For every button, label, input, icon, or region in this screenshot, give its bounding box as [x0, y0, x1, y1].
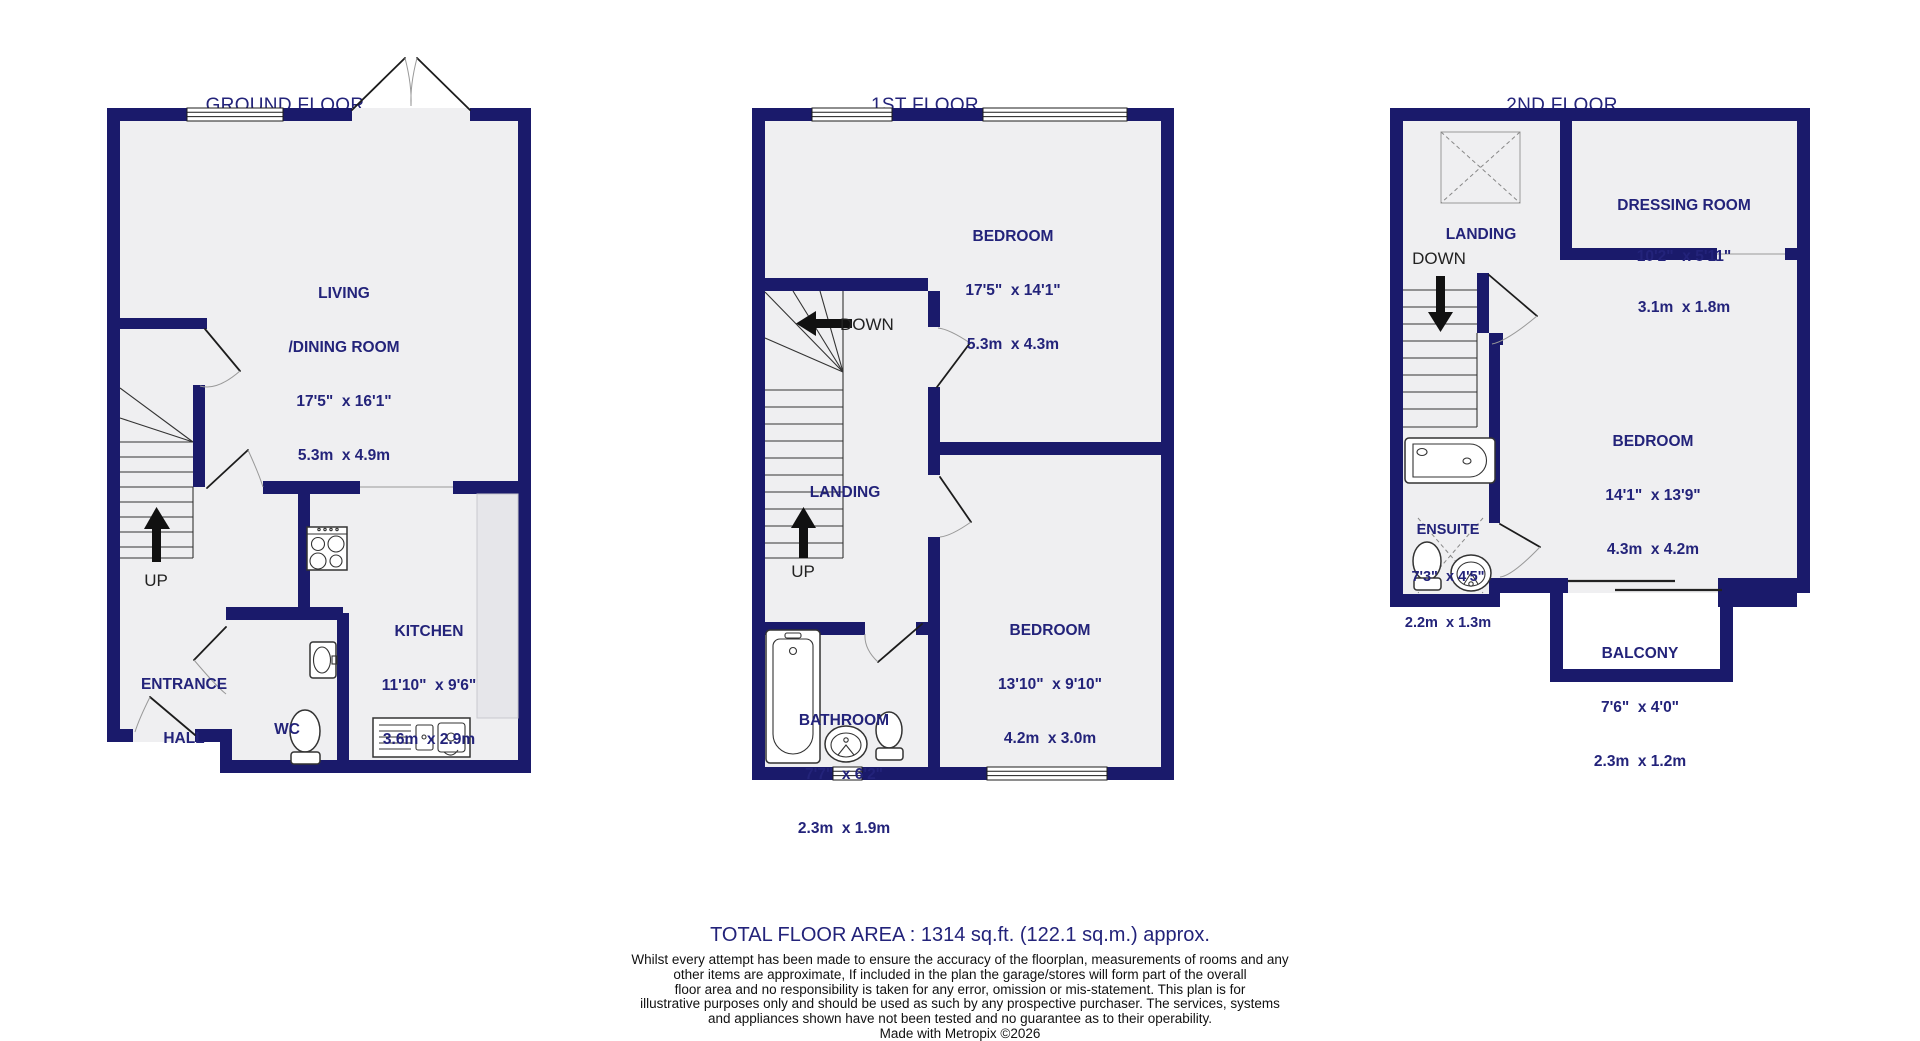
room-label-wc: WC: [274, 685, 300, 775]
kitchen-counter: [477, 494, 518, 718]
room-label-bedroom-second: BEDROOM 14'1" x 13'9" 4.3m x 4.2m: [1605, 397, 1700, 595]
french-doors: [352, 58, 470, 121]
wc-basin-icon: [310, 642, 337, 678]
metropix-credit: Made with Metropix ©2026: [410, 1027, 1510, 1041]
room-label-ensuite: ENSUITE 7'3" x 4'5" 2.2m x 1.3m: [1405, 492, 1491, 663]
floorplan-canvas: GROUND FLOOR 478 sq.ft. (44.5 sq.m.) app…: [0, 0, 1920, 1041]
room-label-bedroom1: BEDROOM 17'5" x 14'1" 5.3m x 4.3m: [965, 192, 1060, 390]
disclaimer-line-4: illustrative purposes only and should be…: [410, 997, 1510, 1012]
room-label-landing-first: LANDING: [810, 448, 881, 538]
second-down-label: DOWN: [1412, 249, 1466, 269]
room-label-kitchen: KITCHEN 11'10" x 9'6" 3.6m x 2.9m: [382, 587, 476, 785]
ground-window: [187, 108, 283, 121]
room-label-bathroom: BATHROOM 7'7" x 6'2" 2.3m x 1.9m: [798, 676, 890, 874]
room-label-living-dining: LIVING /DINING ROOM 17'5" x 16'1" 5.3m x…: [288, 249, 399, 501]
disclaimer-line-5: and appliances shown have not been teste…: [410, 1012, 1510, 1027]
ensuite-bathtub-icon: [1405, 438, 1495, 483]
room-label-entrance-hall: ENTRANCE HALL: [141, 640, 227, 784]
ground-up-label: UP: [144, 571, 168, 591]
room-label-dressing-room: DRESSING ROOM 10'2" x 5'11" 3.1m x 1.8m: [1617, 163, 1750, 350]
room-label-bedroom2: BEDROOM 13'10" x 9'10" 4.2m x 3.0m: [998, 586, 1102, 784]
disclaimer-line-1: Whilst every attempt has been made to en…: [410, 953, 1510, 968]
total-floor-area: TOTAL FLOOR AREA : 1314 sq.ft. (122.1 sq…: [410, 922, 1510, 948]
disclaimer-line-2: other items are approximate, If included…: [410, 968, 1510, 983]
stove-icon: [307, 527, 347, 570]
first-up-label: UP: [791, 562, 815, 582]
room-label-balcony: BALCONY 7'6" x 4'0" 2.3m x 1.2m: [1594, 609, 1686, 807]
first-down-label: DOWN: [840, 315, 894, 335]
footer: TOTAL FLOOR AREA : 1314 sq.ft. (122.1 sq…: [410, 922, 1510, 1041]
disclaimer-line-3: floor area and no responsibility is take…: [410, 983, 1510, 998]
